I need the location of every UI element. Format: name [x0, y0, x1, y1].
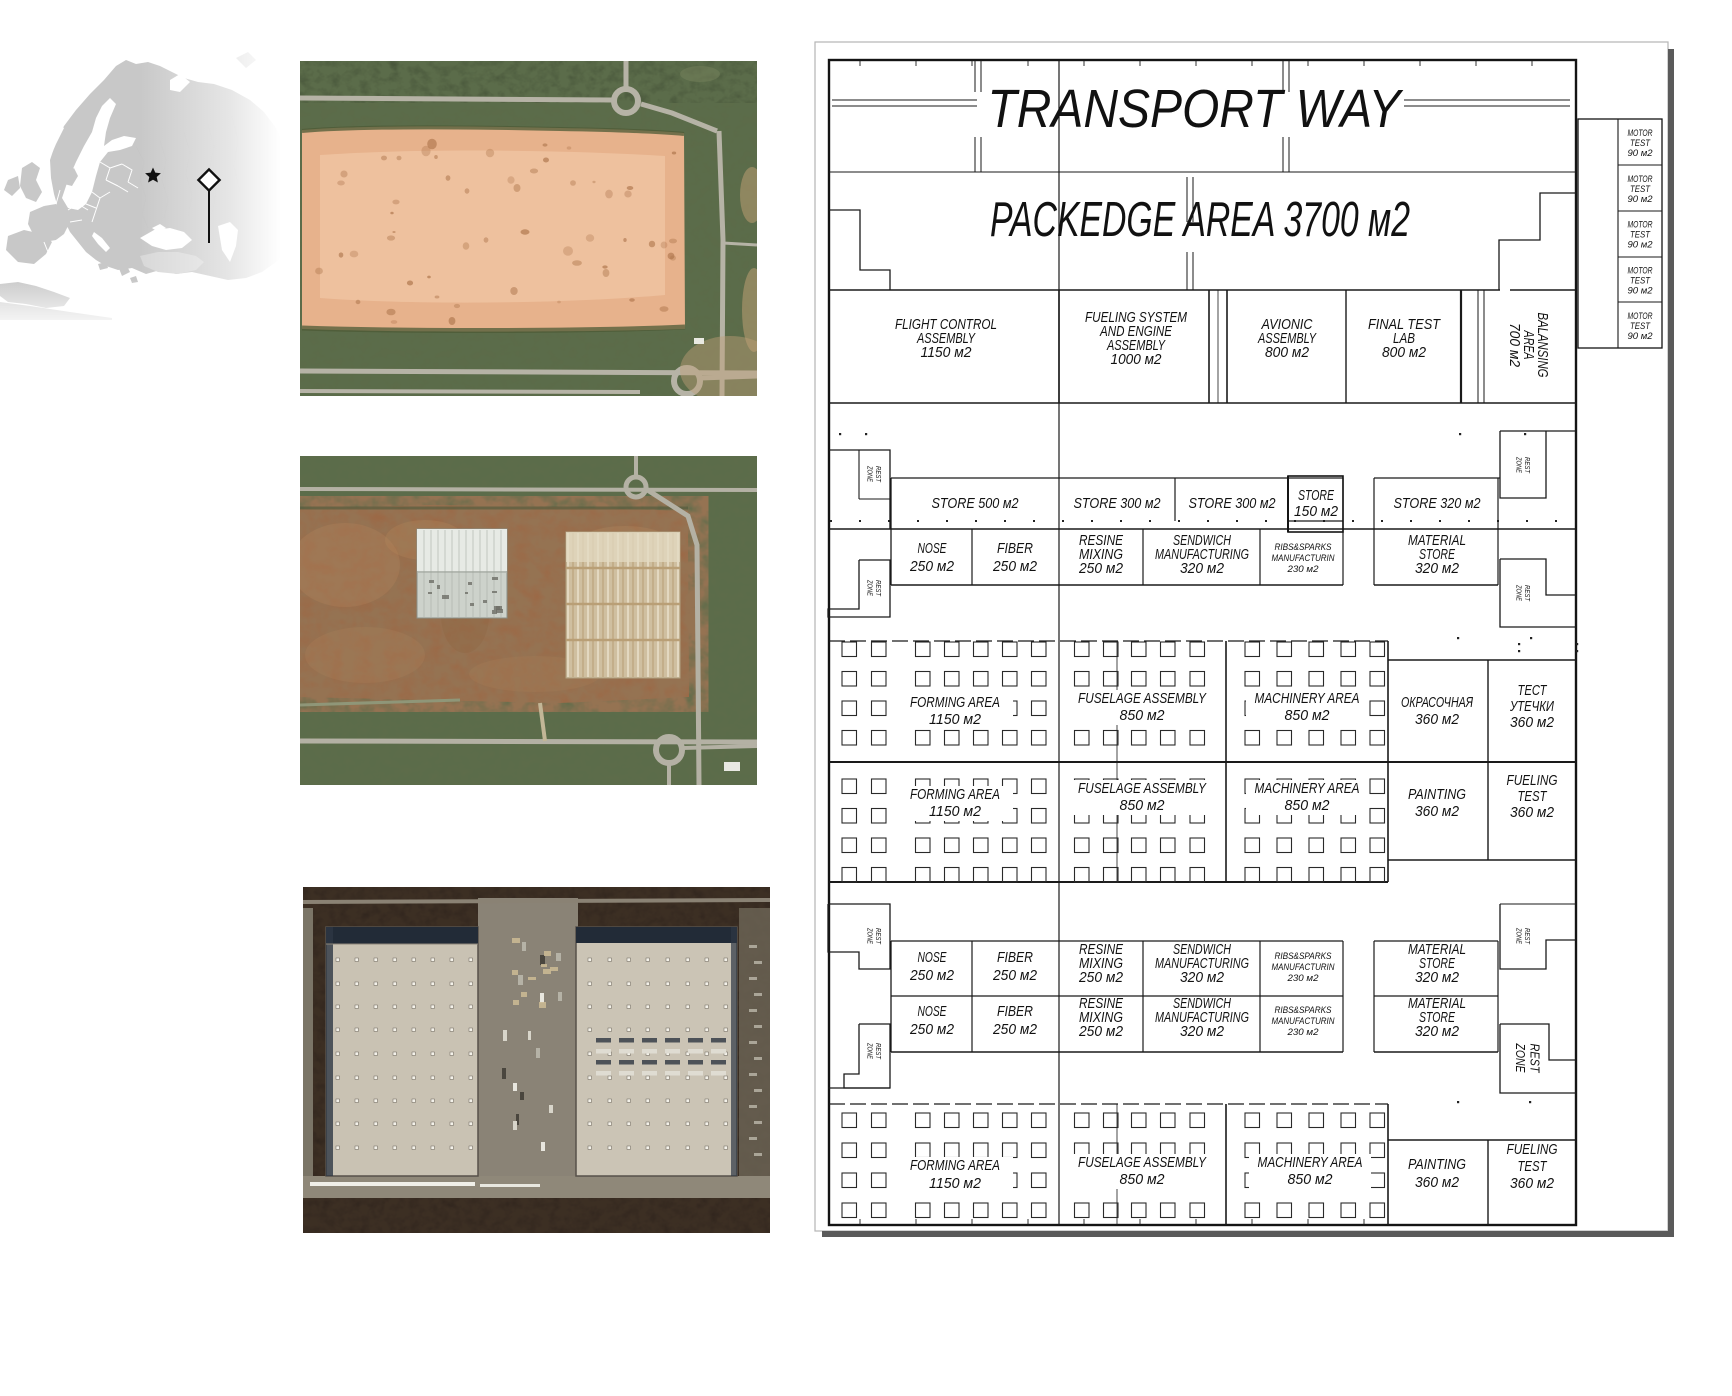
svg-text:250 м2: 250 м2 — [1078, 561, 1123, 577]
svg-text:NOSE: NOSE — [918, 950, 947, 966]
svg-text:FIBER: FIBER — [997, 950, 1033, 966]
svg-text:STORE 320 м2: STORE 320 м2 — [1394, 496, 1481, 512]
svg-text:TEST: TEST — [1630, 275, 1651, 285]
svg-text:250 м2: 250 м2 — [909, 1022, 954, 1038]
svg-text:FORMING AREA: FORMING AREA — [910, 786, 1000, 803]
svg-text:ZONE: ZONE — [1513, 1043, 1528, 1073]
svg-text:TRANSPORT WAY: TRANSPORT WAY — [988, 79, 1405, 139]
svg-text:150 м2: 150 м2 — [1294, 504, 1338, 520]
svg-text:TEST: TEST — [1518, 1159, 1548, 1175]
svg-text:MOTOR: MOTOR — [1628, 220, 1653, 230]
svg-text:360 м2: 360 м2 — [1510, 805, 1554, 821]
svg-text:MANUFACTURIN: MANUFACTURIN — [1272, 1016, 1335, 1027]
svg-text:1150 м2: 1150 м2 — [921, 345, 972, 361]
svg-text:MANUFACTURIN: MANUFACTURIN — [1272, 962, 1335, 973]
svg-text:MACHINERY AREA: MACHINERY AREA — [1255, 780, 1360, 797]
svg-text:УТЕЧКИ: УТЕЧКИ — [1509, 699, 1554, 715]
svg-text:250 м2: 250 м2 — [992, 1022, 1037, 1038]
svg-text:250 м2: 250 м2 — [909, 968, 954, 984]
svg-text:1000 м2: 1000 м2 — [1111, 352, 1162, 368]
svg-text:250 м2: 250 м2 — [1078, 970, 1123, 986]
svg-text:ZONE: ZONE — [866, 1042, 875, 1060]
svg-text:ZONE: ZONE — [1515, 456, 1524, 474]
svg-text:REST: REST — [1527, 1044, 1542, 1074]
svg-text:250 м2: 250 м2 — [992, 968, 1037, 984]
svg-text:ZONE: ZONE — [866, 465, 875, 483]
svg-text:320 м2: 320 м2 — [1415, 561, 1459, 577]
svg-text:850 м2: 850 м2 — [1285, 707, 1331, 724]
svg-text:360 м2: 360 м2 — [1510, 1176, 1554, 1192]
svg-text:MOTOR: MOTOR — [1628, 311, 1653, 321]
svg-text:FUELING: FUELING — [1507, 1142, 1558, 1158]
svg-text:250 м2: 250 м2 — [1078, 1024, 1123, 1040]
svg-text:PACKEDGE AREA 3700 м2: PACKEDGE AREA 3700 м2 — [990, 193, 1410, 247]
svg-text:TEST: TEST — [1518, 789, 1548, 805]
svg-text:STORE 300 м2: STORE 300 м2 — [1189, 496, 1276, 512]
svg-text:MACHINERY AREA: MACHINERY AREA — [1255, 690, 1360, 707]
svg-text:NOSE: NOSE — [918, 541, 947, 557]
svg-text:1150 м2: 1150 м2 — [929, 1175, 982, 1192]
svg-text:STORE: STORE — [1298, 488, 1334, 504]
svg-text:320 м2: 320 м2 — [1415, 970, 1459, 986]
svg-text:FIBER: FIBER — [997, 541, 1033, 557]
svg-text:MOTOR: MOTOR — [1628, 128, 1653, 138]
svg-text:90 м2: 90 м2 — [1628, 240, 1653, 250]
svg-text:ZONE: ZONE — [1515, 584, 1524, 602]
svg-text:800 м2: 800 м2 — [1265, 345, 1309, 361]
svg-text:320 м2: 320 м2 — [1180, 561, 1224, 577]
svg-text:360 м2: 360 м2 — [1415, 712, 1459, 728]
svg-text:360 м2: 360 м2 — [1415, 1175, 1459, 1191]
svg-text:360 м2: 360 м2 — [1510, 715, 1554, 731]
svg-text:TEST: TEST — [1630, 184, 1651, 194]
svg-text:RIBS&SPARKS: RIBS&SPARKS — [1275, 951, 1333, 962]
svg-text:ТЕСТ: ТЕСТ — [1518, 683, 1548, 699]
svg-text:PAINTING: PAINTING — [1408, 787, 1466, 803]
svg-text:TEST: TEST — [1630, 230, 1651, 240]
svg-text:FIBER: FIBER — [997, 1004, 1033, 1020]
svg-text:320 м2: 320 м2 — [1180, 970, 1224, 986]
svg-text:90 м2: 90 м2 — [1628, 194, 1653, 204]
svg-text:250 м2: 250 м2 — [992, 559, 1037, 575]
svg-text:MOTOR: MOTOR — [1628, 174, 1653, 184]
svg-text:TEST: TEST — [1630, 138, 1651, 148]
svg-text:STORE 500 м2: STORE 500 м2 — [932, 496, 1019, 512]
svg-text:1150 м2: 1150 м2 — [929, 803, 982, 820]
svg-text:MOTOR: MOTOR — [1628, 265, 1653, 275]
svg-text:700 м2: 700 м2 — [1506, 323, 1522, 367]
svg-text:RIBS&SPARKS: RIBS&SPARKS — [1275, 542, 1333, 553]
svg-text:320 м2: 320 м2 — [1415, 1024, 1459, 1040]
svg-text:FUSELAGE ASSEMBLY: FUSELAGE ASSEMBLY — [1078, 1154, 1207, 1171]
svg-text:90 м2: 90 м2 — [1628, 285, 1653, 295]
svg-text:RIBS&SPARKS: RIBS&SPARKS — [1275, 1005, 1333, 1016]
svg-text:1150 м2: 1150 м2 — [929, 711, 982, 728]
svg-text:230 м2: 230 м2 — [1286, 1027, 1319, 1038]
svg-text:TEST: TEST — [1630, 321, 1651, 331]
svg-text:FORMING AREA: FORMING AREA — [910, 694, 1000, 711]
svg-text:ОКРАСОЧНАЯ: ОКРАСОЧНАЯ — [1401, 695, 1473, 711]
svg-text:ZONE: ZONE — [866, 579, 875, 597]
svg-text:360 м2: 360 м2 — [1415, 804, 1459, 820]
svg-text:MACHINERY AREA: MACHINERY AREA — [1258, 1154, 1363, 1171]
svg-text:FORMING AREA: FORMING AREA — [910, 1157, 1000, 1174]
svg-text:850 м2: 850 м2 — [1120, 797, 1166, 814]
svg-text:230 м2: 230 м2 — [1286, 973, 1319, 984]
svg-text:PAINTING: PAINTING — [1408, 1157, 1466, 1173]
svg-text:850 м2: 850 м2 — [1120, 1171, 1166, 1188]
svg-text:90 м2: 90 м2 — [1628, 331, 1653, 341]
svg-text:FUSELAGE ASSEMBLY: FUSELAGE ASSEMBLY — [1078, 690, 1207, 707]
svg-text:850 м2: 850 м2 — [1285, 797, 1331, 814]
svg-text:STORE 300 м2: STORE 300 м2 — [1074, 496, 1161, 512]
svg-text:850 м2: 850 м2 — [1120, 707, 1166, 724]
svg-text:90 м2: 90 м2 — [1628, 148, 1653, 158]
svg-text:850 м2: 850 м2 — [1288, 1171, 1334, 1188]
svg-text:FUSELAGE ASSEMBLY: FUSELAGE ASSEMBLY — [1078, 780, 1207, 797]
svg-text:MANUFACTURIN: MANUFACTURIN — [1272, 553, 1335, 564]
svg-text:ZONE: ZONE — [866, 927, 875, 945]
svg-text:250 м2: 250 м2 — [909, 559, 954, 575]
svg-text:FUELING: FUELING — [1507, 773, 1558, 789]
svg-text:NOSE: NOSE — [918, 1004, 947, 1020]
svg-text:230 м2: 230 м2 — [1286, 564, 1319, 575]
svg-text:ZONE: ZONE — [1515, 927, 1524, 945]
svg-text:320 м2: 320 м2 — [1180, 1024, 1224, 1040]
svg-text:800 м2: 800 м2 — [1382, 345, 1426, 361]
